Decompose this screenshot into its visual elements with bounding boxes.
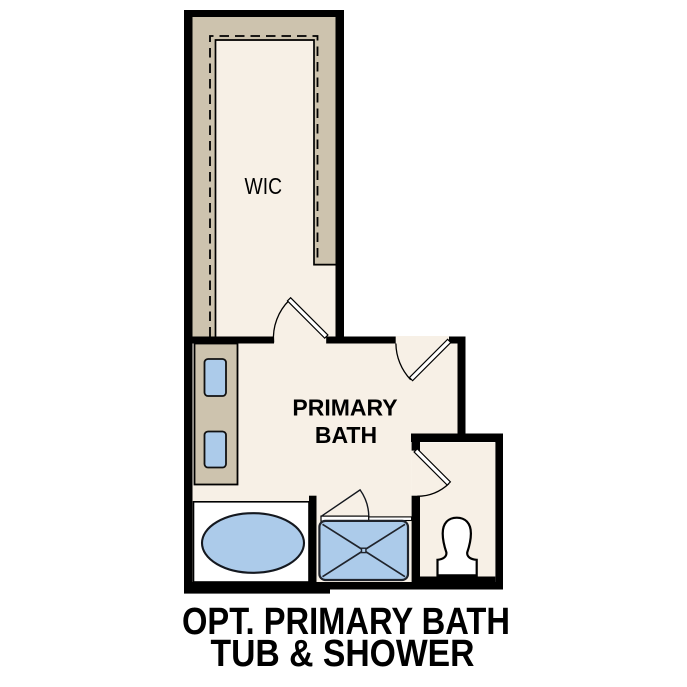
svg-text:TUB & SHOWER: TUB & SHOWER [211,633,475,675]
svg-text:PRIMARY: PRIMARY [292,395,397,421]
svg-text:WIC: WIC [245,173,283,199]
svg-text:BATH: BATH [315,422,377,448]
